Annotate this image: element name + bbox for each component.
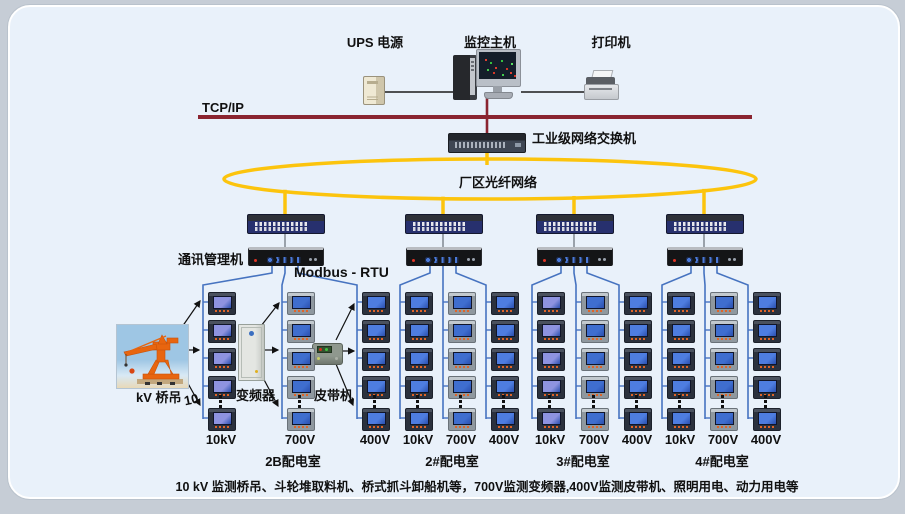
meter-screen [715,324,734,337]
ethernet-switch-icon [247,214,325,234]
power-meter-icon [208,408,236,431]
ups-label: UPS 电源 [347,32,403,51]
meter-buttons [760,366,774,369]
power-meter-icon [667,320,695,343]
meter-buttons [455,310,469,313]
ellipsis-dots [635,395,638,398]
meter-buttons [588,338,602,341]
power-meter-icon [710,292,738,315]
power-meter-icon [491,320,519,343]
power-meter-icon [491,348,519,371]
meter-buttons [588,366,602,369]
vfd-label: 变频器 [236,385,275,404]
power-meter-icon [537,348,565,371]
ethernet-switch-icon [536,214,614,234]
crane-label: kV 桥吊 [136,387,182,406]
voltage-label: 10kV [665,432,695,447]
meter-screen [586,352,605,365]
power-meter-icon [667,348,695,371]
comm-gateway-icon [537,247,613,266]
power-meter-icon [537,292,565,315]
meter-buttons [215,310,229,313]
power-meter-icon [208,348,236,371]
crane-drawing [117,325,188,388]
meter-buttons [412,394,426,397]
ethernet-switch-icon [666,214,744,234]
diagram-canvas: UPS 电源 监控主机 打印机 TCP/IP 工业级网络交换机 厂区光纤网络 通… [0,0,905,507]
meter-screen [453,380,472,393]
meter-buttons [294,426,308,429]
meter-buttons [455,394,469,397]
meter-buttons [498,338,512,341]
meter-buttons [215,338,229,341]
meter-screen [542,380,561,393]
power-meter-icon [710,408,738,431]
meter-buttons [544,366,558,369]
meter-screen [586,324,605,337]
ellipsis-dots [459,395,462,398]
modbus-label: Modbus - RTU [294,264,389,280]
meter-screen [715,380,734,393]
ellipsis-dots [298,395,301,398]
power-meter-icon [448,292,476,315]
meter-buttons [498,366,512,369]
meter-buttons [760,338,774,341]
meter-buttons [674,394,688,397]
power-meter-icon [362,348,390,371]
meter-screen [367,412,386,425]
voltage-label: 10kV [206,432,236,447]
ellipsis-dots [548,395,551,398]
power-meter-icon [537,376,565,399]
power-meter-icon [287,408,315,431]
power-meter-icon [405,348,433,371]
voltage-label: 700V [285,432,315,447]
meter-screen [213,412,232,425]
power-meter-icon [287,376,315,399]
meter-buttons [544,394,558,397]
power-meter-icon [405,408,433,431]
power-meter-icon [667,292,695,315]
meter-screen [292,352,311,365]
tcpip-label: TCP/IP [202,100,244,115]
meter-buttons [544,426,558,429]
meter-screen [213,380,232,393]
meter-screen [715,352,734,365]
power-meter-icon [287,348,315,371]
meter-buttons [588,310,602,313]
meter-buttons [631,394,645,397]
ups-device-icon [363,76,385,105]
meter-screen [213,352,232,365]
meter-buttons [294,338,308,341]
meter-screen [367,296,386,309]
power-meter-icon [624,408,652,431]
meter-screen [672,352,691,365]
meter-screen [453,412,472,425]
meter-buttons [544,310,558,313]
ellipsis-dots [502,395,505,398]
meter-screen [496,324,515,337]
voltage-label: 400V [360,432,390,447]
meter-screen [367,324,386,337]
footnote: 10 kV 监测桥吊、斗轮堆取料机、桥式抓斗卸船机等，700V监测变频器,400… [176,476,799,495]
power-meter-icon [362,376,390,399]
meter-screen [758,380,777,393]
power-meter-icon [208,376,236,399]
room-label: 2B配电室 [265,451,321,470]
belt-label: 皮带机 [314,385,353,404]
diagram-panel: UPS 电源 监控主机 打印机 TCP/IP 工业级网络交换机 厂区光纤网络 通… [8,5,900,499]
meter-buttons [215,394,229,397]
power-meter-icon [753,320,781,343]
meter-buttons [631,366,645,369]
meter-buttons [412,310,426,313]
power-meter-icon [491,376,519,399]
meter-screen [715,296,734,309]
fiber-ring-label: 厂区光纤网络 [459,172,537,191]
meter-screen [410,412,429,425]
meter-screen [758,296,777,309]
meter-screen [672,380,691,393]
meter-screen [629,352,648,365]
meter-buttons [294,394,308,397]
meter-buttons [717,338,731,341]
meter-screen [758,412,777,425]
meter-screen [292,296,311,309]
meter-screen [410,324,429,337]
industrial-switch-label: 工业级网络交换机 [532,128,636,147]
meter-screen [542,324,561,337]
power-meter-icon [405,320,433,343]
meter-buttons [717,310,731,313]
meter-screen [542,352,561,365]
power-meter-icon [667,376,695,399]
power-meter-icon [537,320,565,343]
ellipsis-dots [373,395,376,398]
power-meter-icon [448,348,476,371]
meter-buttons [544,338,558,341]
meter-screen [629,412,648,425]
power-meter-icon [624,320,652,343]
meter-buttons [369,394,383,397]
meter-buttons [631,310,645,313]
power-meter-icon [491,408,519,431]
printer-icon [584,70,617,99]
power-meter-icon [753,348,781,371]
power-meter-icon [362,292,390,315]
power-meter-icon [448,376,476,399]
meter-buttons [588,426,602,429]
meter-buttons [631,426,645,429]
power-meter-icon [624,292,652,315]
meter-buttons [631,338,645,341]
meter-buttons [412,338,426,341]
meter-screen [496,296,515,309]
printer-label: 打印机 [591,32,630,51]
power-meter-icon [491,292,519,315]
belt-machine-icon [312,343,343,365]
meter-buttons [498,426,512,429]
meter-buttons [369,338,383,341]
voltage-label: 400V [489,432,519,447]
meter-screen [586,296,605,309]
voltage-label: 400V [622,432,652,447]
power-meter-icon [581,320,609,343]
comm-gateway-icon [406,247,482,266]
meter-buttons [369,426,383,429]
meter-buttons [674,338,688,341]
printer-slot [589,88,612,90]
meter-screen [292,324,311,337]
meter-buttons [215,366,229,369]
meter-buttons [588,394,602,397]
meter-screen [629,324,648,337]
meter-screen [410,380,429,393]
meter-buttons [412,366,426,369]
ellipsis-dots [721,395,724,398]
voltage-label: 10kV [535,432,565,447]
power-meter-icon [537,408,565,431]
meter-buttons [215,426,229,429]
monitor-screen [479,52,516,79]
meter-buttons [455,366,469,369]
meter-screen [292,380,311,393]
meter-buttons [455,426,469,429]
power-meter-icon [624,376,652,399]
vfd-cabinet-icon [238,324,265,381]
meter-screen [496,380,515,393]
meter-screen [542,296,561,309]
power-meter-icon [710,348,738,371]
comm-manager-label: 通讯管理机 [178,249,243,268]
power-meter-icon [624,348,652,371]
meter-buttons [498,394,512,397]
voltage-label: 700V [579,432,609,447]
meter-screen [586,380,605,393]
ethernet-switch-icon [405,214,483,234]
room-label: 2#配电室 [425,451,478,470]
power-meter-icon [405,376,433,399]
meter-screen [496,352,515,365]
meter-screen [672,324,691,337]
meter-buttons [369,310,383,313]
meter-screen [292,412,311,425]
power-meter-icon [362,320,390,343]
power-meter-icon [753,408,781,431]
meter-buttons [674,366,688,369]
ellipsis-dots [416,395,419,398]
meter-buttons [717,366,731,369]
power-meter-icon [753,292,781,315]
power-meter-icon [710,376,738,399]
power-meter-icon [208,292,236,315]
voltage-label: 400V [751,432,781,447]
meter-buttons [760,310,774,313]
meter-buttons [674,426,688,429]
ellipsis-dots [764,395,767,398]
meter-screen [367,380,386,393]
power-meter-icon [667,408,695,431]
meter-buttons [498,310,512,313]
meter-screen [213,324,232,337]
power-meter-icon [208,320,236,343]
scada-pixels [485,59,487,61]
crane-label-prefix: 10 [183,391,200,409]
power-meter-icon [581,292,609,315]
ellipsis-dots [592,395,595,398]
power-meter-icon [405,292,433,315]
power-meter-icon [448,320,476,343]
power-meter-icon [753,376,781,399]
meter-screen [453,352,472,365]
port-crane-image [116,324,189,389]
power-meter-icon [287,292,315,315]
meter-screen [453,324,472,337]
meter-screen [672,412,691,425]
meter-screen [496,412,515,425]
comm-gateway-icon [667,247,743,266]
industrial-switch-icon [448,133,526,153]
meter-screen [715,412,734,425]
meter-buttons [294,366,308,369]
ellipsis-dots [219,395,222,398]
monitor-host-label: 监控主机 [464,32,516,51]
meter-buttons [412,426,426,429]
meter-screen [586,412,605,425]
meter-buttons [717,426,731,429]
meter-screen [410,352,429,365]
voltage-label: 10kV [403,432,433,447]
power-meter-icon [448,408,476,431]
monitor-icon [476,49,521,99]
power-meter-icon [710,320,738,343]
meter-screen [629,380,648,393]
power-meter-icon [362,408,390,431]
monitor-base [484,92,513,99]
meter-buttons [760,394,774,397]
meter-buttons [455,338,469,341]
meter-screen [542,412,561,425]
printer-body [584,84,619,100]
meter-screen [213,296,232,309]
meter-screen [629,296,648,309]
voltage-label: 700V [446,432,476,447]
meter-buttons [369,366,383,369]
meter-buttons [760,426,774,429]
meter-buttons [674,310,688,313]
pc-tower-icon [453,55,477,100]
power-meter-icon [581,348,609,371]
room-label: 3#配电室 [556,451,609,470]
meter-buttons [717,394,731,397]
meter-screen [453,296,472,309]
ellipsis-dots [678,395,681,398]
meter-buttons [294,310,308,313]
meter-screen [758,324,777,337]
meter-screen [672,296,691,309]
meter-screen [367,352,386,365]
meter-screen [758,352,777,365]
power-meter-icon [581,376,609,399]
meter-screen [410,296,429,309]
power-meter-icon [581,408,609,431]
power-meter-icon [287,320,315,343]
room-label: 4#配电室 [695,451,748,470]
voltage-label: 700V [708,432,738,447]
